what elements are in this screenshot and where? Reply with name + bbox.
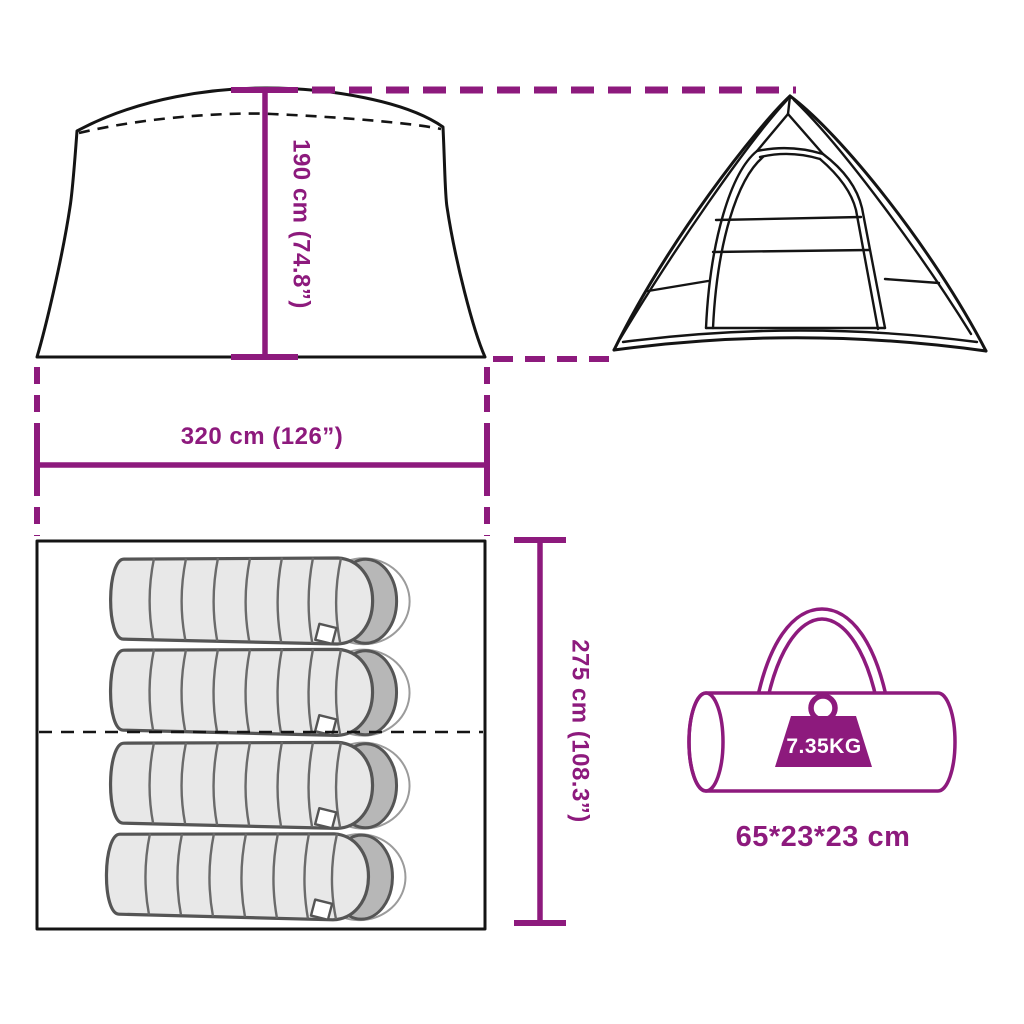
tent-side-left-seam <box>648 281 708 291</box>
carry-bag-size-label: 65*23*23 cm <box>736 821 911 853</box>
sleeping-bag <box>110 740 410 829</box>
carry-bag: 7.35KG 65*23*23 cm <box>689 609 955 853</box>
tent-side-apex-left <box>757 114 788 151</box>
tent-side-arch-right-outer <box>823 154 885 328</box>
tent-side-left-edge <box>614 96 790 350</box>
height-dimension-label: 190 cm (74.8”) <box>288 139 315 309</box>
tent-side-view <box>614 96 986 351</box>
sleeping-bag <box>106 831 406 921</box>
tent-side-arch-left-inner <box>713 157 763 328</box>
width-dimension-label: 320 cm (126”) <box>181 423 344 450</box>
tent-floor-plan <box>37 541 485 929</box>
sleeping-bag <box>110 556 410 645</box>
tent-side-window-sill <box>716 217 861 220</box>
tent-side-window-top-inner <box>760 154 820 159</box>
sleeping-bag <box>110 647 410 736</box>
product-dimension-diagram: 7.35KG 65*23*23 cm 190 cm (74.8”) 320 cm… <box>0 0 1024 1024</box>
depth-dimension-label: 275 cm (108.3”) <box>567 639 594 823</box>
tent-front-view <box>37 88 485 357</box>
tent-side-right-seam <box>885 279 939 283</box>
tent-side-door-band <box>713 250 869 252</box>
tent-side-base <box>614 338 986 351</box>
diagram-canvas: 7.35KG 65*23*23 cm 190 cm (74.8”) 320 cm… <box>0 0 1024 1024</box>
weight-label: 7.35KG <box>786 735 861 758</box>
